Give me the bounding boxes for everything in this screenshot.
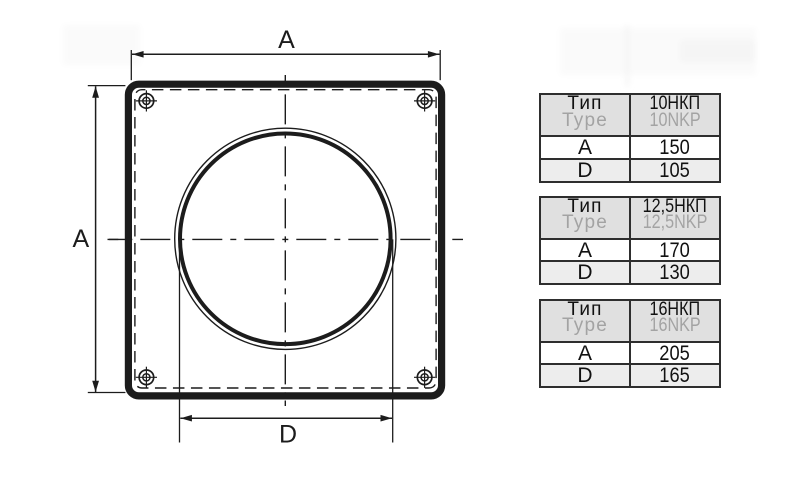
svg-text:D: D <box>279 420 297 448</box>
svg-text:A: A <box>278 26 295 54</box>
svg-text:A: A <box>72 225 89 253</box>
